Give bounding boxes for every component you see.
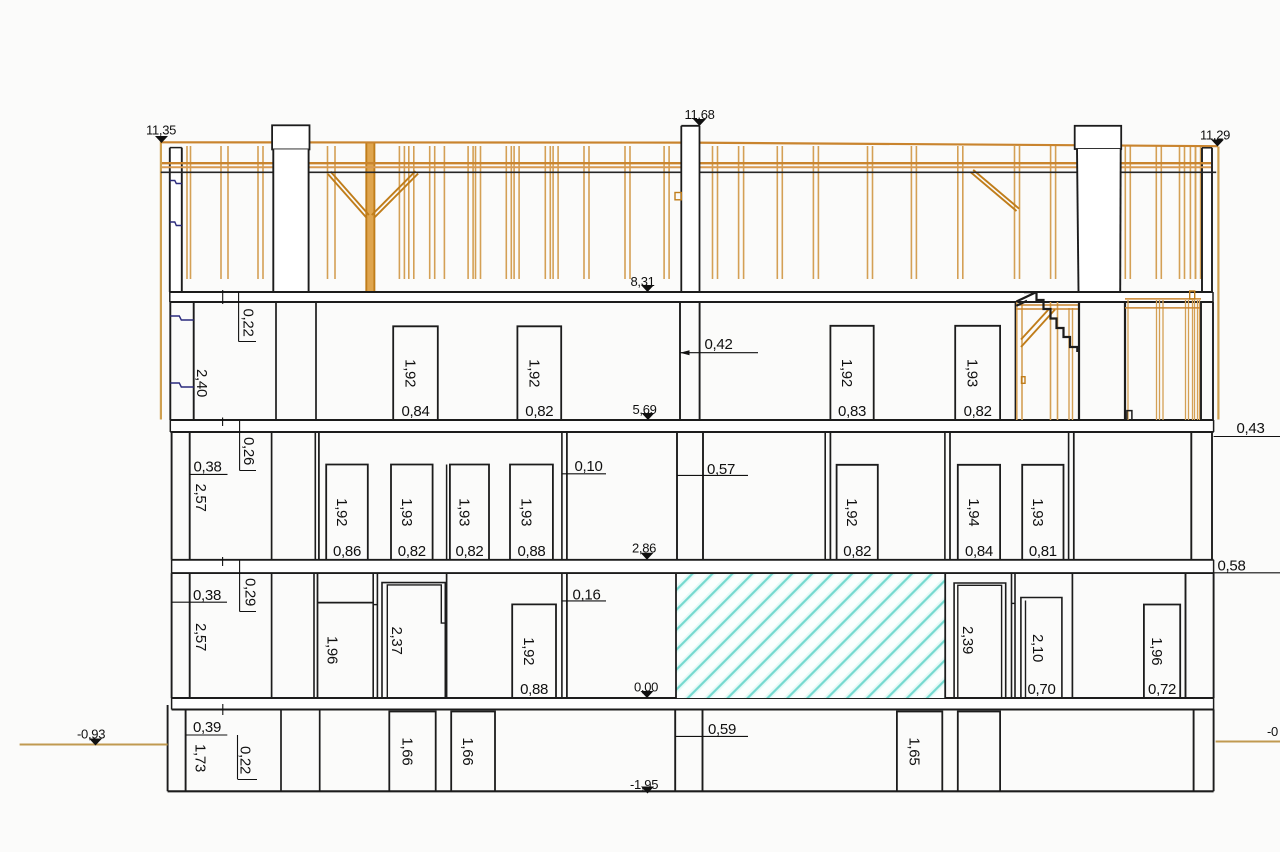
svg-text:1,96: 1,96 (324, 636, 341, 664)
svg-text:11,35: 11,35 (146, 123, 176, 138)
svg-text:0,84: 0,84 (402, 403, 430, 420)
svg-text:0,82: 0,82 (398, 543, 426, 560)
svg-text:1,94: 1,94 (965, 498, 982, 526)
svg-text:1,92: 1,92 (525, 359, 542, 387)
svg-text:1,65: 1,65 (906, 737, 923, 765)
svg-text:0,82: 0,82 (843, 543, 871, 560)
svg-text:1,92: 1,92 (333, 498, 350, 526)
svg-text:1,73: 1,73 (192, 744, 209, 772)
svg-text:2,40: 2,40 (193, 369, 210, 397)
svg-text:0,29: 0,29 (242, 578, 259, 606)
svg-text:1,66: 1,66 (399, 737, 416, 765)
svg-text:0,82: 0,82 (964, 403, 992, 420)
svg-text:1,93: 1,93 (517, 498, 534, 526)
svg-text:0,22: 0,22 (240, 309, 257, 337)
svg-text:1,92: 1,92 (520, 637, 537, 665)
svg-text:1,93: 1,93 (964, 359, 981, 387)
svg-text:2,57: 2,57 (192, 623, 209, 651)
svg-text:0,42: 0,42 (705, 336, 733, 353)
svg-text:-0: -0 (1267, 724, 1278, 739)
svg-text:2,10: 2,10 (1029, 634, 1046, 662)
svg-text:1,96: 1,96 (1148, 637, 1165, 665)
svg-text:0,72: 0,72 (1148, 681, 1176, 698)
svg-text:0,82: 0,82 (455, 543, 483, 560)
svg-text:1,92: 1,92 (402, 359, 419, 387)
svg-text:0,26: 0,26 (240, 437, 257, 465)
svg-text:0,22: 0,22 (237, 746, 254, 774)
svg-text:0,82: 0,82 (525, 403, 553, 420)
svg-text:1,93: 1,93 (1029, 498, 1046, 526)
svg-text:0,10: 0,10 (575, 458, 603, 475)
svg-text:0,84: 0,84 (965, 543, 993, 560)
svg-text:0,59: 0,59 (708, 721, 736, 738)
svg-text:0,83: 0,83 (838, 403, 866, 420)
svg-text:0,86: 0,86 (333, 543, 361, 560)
svg-text:0,39: 0,39 (193, 719, 221, 736)
svg-text:0,88: 0,88 (520, 681, 548, 698)
svg-text:2,39: 2,39 (959, 626, 976, 654)
svg-text:1,66: 1,66 (459, 737, 476, 765)
svg-text:1,93: 1,93 (398, 498, 415, 526)
svg-text:2,57: 2,57 (192, 484, 209, 512)
svg-text:0,43: 0,43 (1237, 420, 1265, 437)
svg-text:1,93: 1,93 (455, 498, 472, 526)
svg-text:2,37: 2,37 (388, 627, 405, 655)
svg-text:0,70: 0,70 (1028, 681, 1056, 698)
svg-text:1,92: 1,92 (838, 359, 855, 387)
svg-text:1,92: 1,92 (843, 498, 860, 526)
svg-text:0,38: 0,38 (193, 587, 221, 604)
svg-text:0,38: 0,38 (194, 459, 222, 476)
svg-text:0,88: 0,88 (517, 543, 545, 560)
svg-text:0,81: 0,81 (1029, 543, 1057, 560)
svg-text:0,58: 0,58 (1218, 558, 1246, 575)
